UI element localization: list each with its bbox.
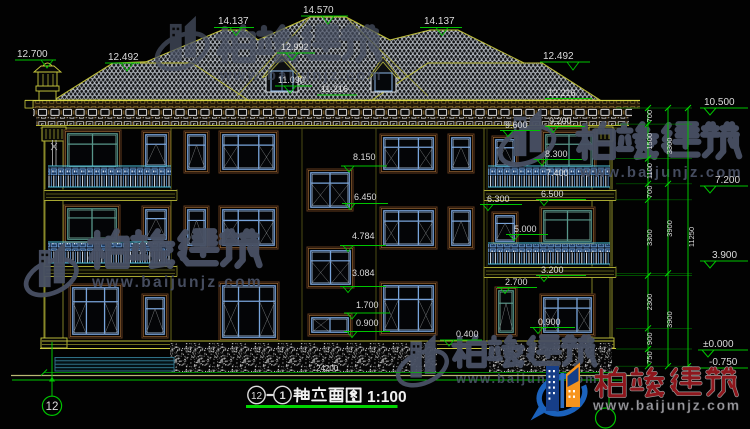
svg-text:9.600: 9.600 — [505, 120, 528, 130]
svg-text:11250: 11250 — [687, 227, 696, 247]
svg-text:3.900: 3.900 — [712, 250, 737, 261]
svg-text:14.570: 14.570 — [303, 5, 334, 16]
svg-text:700: 700 — [645, 186, 654, 199]
svg-text:3.084: 3.084 — [352, 268, 375, 278]
svg-text:0.900: 0.900 — [356, 318, 379, 328]
svg-text:www.baijunjz.com: www.baijunjz.com — [91, 274, 263, 291]
svg-text:6.450: 6.450 — [354, 192, 377, 202]
svg-text:0.400: 0.400 — [456, 329, 479, 339]
svg-text:6.300: 6.300 — [487, 194, 510, 204]
svg-text:±0.000: ±0.000 — [703, 339, 734, 350]
svg-text:8.300: 8.300 — [545, 149, 568, 159]
svg-text:12: 12 — [251, 391, 263, 402]
svg-text:1500: 1500 — [645, 133, 654, 150]
svg-text:www.baijunjz.com: www.baijunjz.com — [592, 398, 741, 413]
svg-text:24200: 24200 — [316, 364, 339, 373]
svg-text:12.492: 12.492 — [108, 52, 139, 63]
svg-text:3300: 3300 — [665, 138, 674, 155]
svg-text:700: 700 — [645, 110, 654, 123]
svg-text:1: 1 — [279, 390, 285, 402]
svg-text:7.200: 7.200 — [715, 175, 740, 186]
svg-text:750: 750 — [645, 351, 654, 364]
svg-text:14.137: 14.137 — [218, 16, 249, 27]
svg-text:2.700: 2.700 — [505, 277, 528, 287]
svg-text:12.492: 12.492 — [543, 51, 574, 62]
svg-text:9.200: 9.200 — [549, 116, 572, 126]
svg-text:6.500: 6.500 — [541, 189, 564, 199]
svg-text:12: 12 — [46, 401, 59, 413]
svg-text:4.784: 4.784 — [352, 231, 375, 241]
svg-text:3900: 3900 — [665, 220, 674, 237]
svg-text:3.200: 3.200 — [541, 265, 564, 275]
svg-text:12.700: 12.700 — [17, 49, 48, 60]
svg-text:10.500: 10.500 — [704, 97, 735, 108]
svg-text:900: 900 — [645, 332, 654, 345]
svg-text:1100: 1100 — [645, 163, 654, 179]
svg-text:5.000: 5.000 — [514, 224, 537, 234]
svg-text:2300: 2300 — [645, 294, 654, 311]
svg-text:1:100: 1:100 — [367, 389, 407, 406]
svg-text:-0.750: -0.750 — [709, 357, 738, 368]
svg-text:3300: 3300 — [645, 229, 654, 246]
svg-text:12.216: 12.216 — [548, 88, 576, 98]
svg-text:8.150: 8.150 — [353, 152, 376, 162]
svg-text:14.137: 14.137 — [424, 16, 455, 27]
svg-text:1.700: 1.700 — [356, 300, 379, 310]
svg-text:3900: 3900 — [665, 311, 674, 328]
svg-text:7.400: 7.400 — [546, 168, 569, 178]
svg-text:11.216: 11.216 — [321, 84, 348, 94]
svg-text:12.992: 12.992 — [281, 42, 309, 52]
svg-text:11.090: 11.090 — [278, 75, 305, 85]
svg-text:0.900: 0.900 — [538, 317, 561, 327]
